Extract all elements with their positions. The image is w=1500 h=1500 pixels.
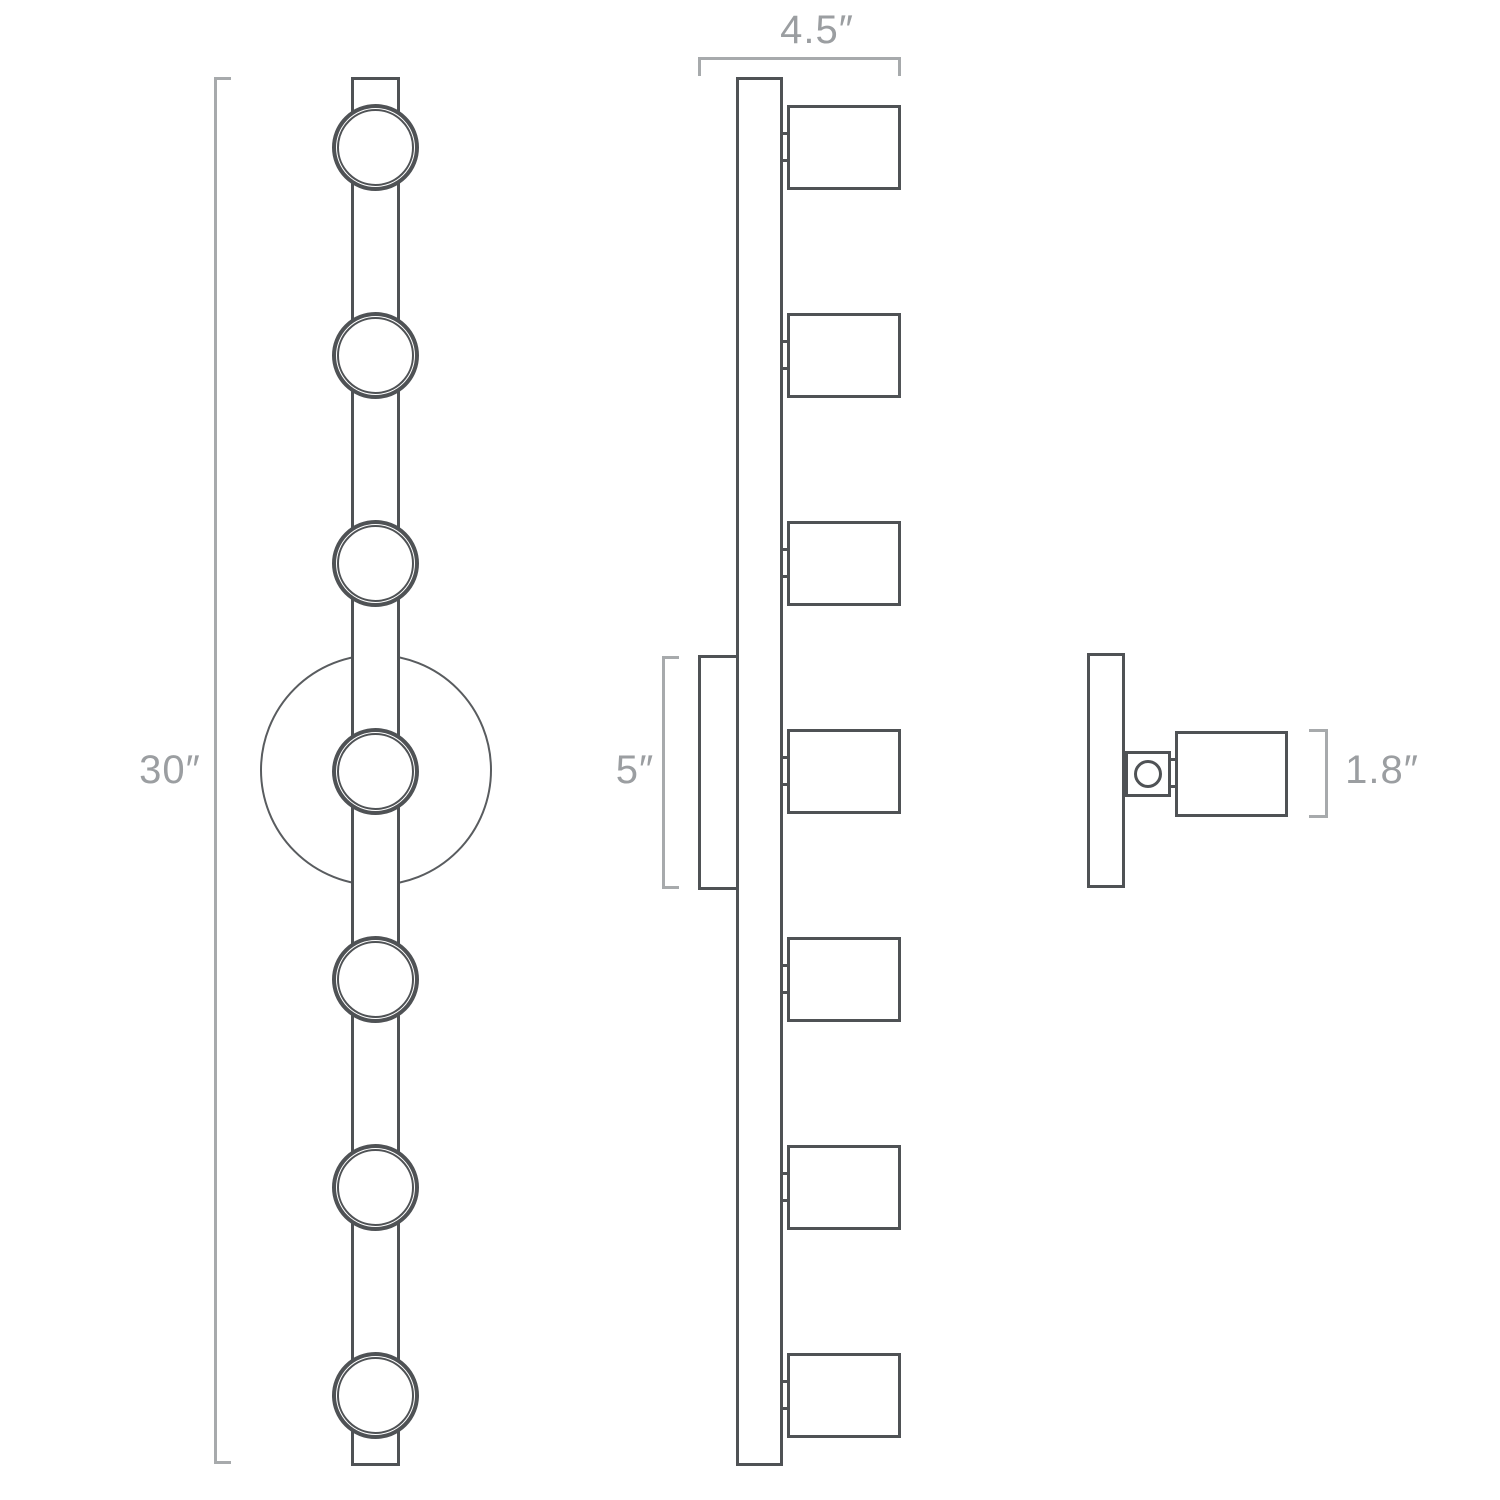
lamp-rim-icon [337, 317, 414, 394]
lamp-circle-6 [332, 1144, 419, 1231]
lamp-rim-icon [337, 525, 414, 602]
depth-dimension-tick-right [898, 57, 901, 76]
dimension-drawing: 30″ 4.5″ 5″ [0, 0, 1500, 1500]
lamp-circle-5 [332, 936, 419, 1023]
canopy-side-profile [698, 655, 739, 890]
lamp-circle-1 [332, 104, 419, 191]
height-dimension-tick-top [214, 77, 231, 80]
lamp-cylinder-1 [787, 105, 901, 190]
depth-dimension-label: 4.5″ [742, 8, 892, 52]
canopy-dimension-label: 5″ [595, 748, 675, 792]
backplate [1087, 653, 1125, 888]
height-dimension-label: 30″ [115, 748, 225, 792]
mounting-bar-side [736, 77, 783, 1466]
lamp-cylinder-6 [787, 1145, 901, 1230]
lamp-cylinder-5 [787, 937, 901, 1022]
lamp-circle-7 [332, 1352, 419, 1439]
lamp-dimension-tick-bottom [1309, 815, 1328, 818]
canopy-dimension-tick-top [662, 656, 679, 659]
lamp-dimension-tick-top [1309, 729, 1328, 732]
lamp-cylinder-7 [787, 1353, 901, 1438]
lamp-rim-icon [337, 941, 414, 1018]
lamp-cylinder-4 [787, 729, 901, 814]
height-dimension-tick-bottom [214, 1461, 231, 1464]
depth-dimension-line [698, 57, 901, 60]
lamp-rim-icon [337, 1149, 414, 1226]
lamp-cylinder-2 [787, 313, 901, 398]
lamp-circle-2 [332, 312, 419, 399]
lamp-circle-3 [332, 520, 419, 607]
depth-dimension-tick-left [698, 57, 701, 76]
lamp-dimension-label: 1.8″ [1332, 748, 1432, 792]
lamp-dimension-line [1325, 729, 1328, 818]
lamp-cylinder-3 [787, 521, 901, 606]
lamp-rim-icon [337, 733, 414, 810]
lamp-cylinder-detail [1175, 731, 1288, 817]
lamp-circle-4 [332, 728, 419, 815]
lamp-rim-icon [337, 109, 414, 186]
canopy-dimension-tick-bottom [662, 886, 679, 889]
lamp-rim-icon [337, 1357, 414, 1434]
pivot-circle-icon [1134, 760, 1162, 788]
